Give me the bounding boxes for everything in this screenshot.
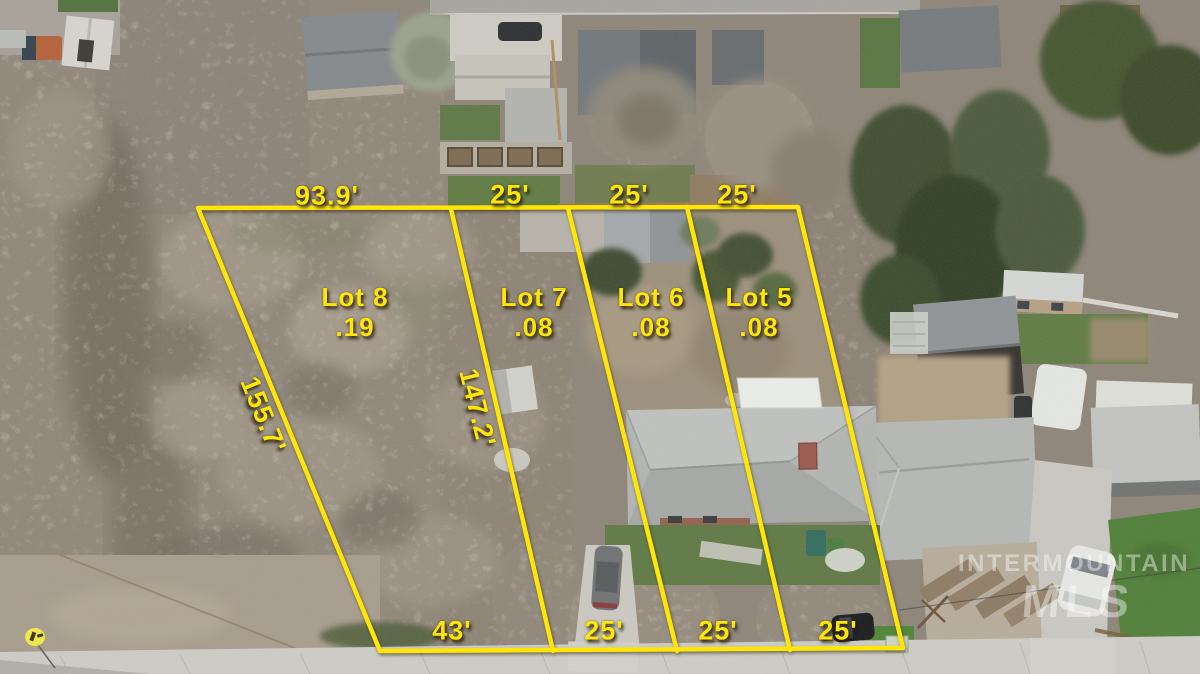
watermark-line2: MLS (1020, 574, 1200, 628)
mls-watermark: INTERMOUNTAIN MLS (958, 550, 1200, 628)
aerial-lot-photo: 93.9' 25' 25' 25' Lot 8 .19 Lot 7 .08 Lo… (0, 0, 1200, 674)
